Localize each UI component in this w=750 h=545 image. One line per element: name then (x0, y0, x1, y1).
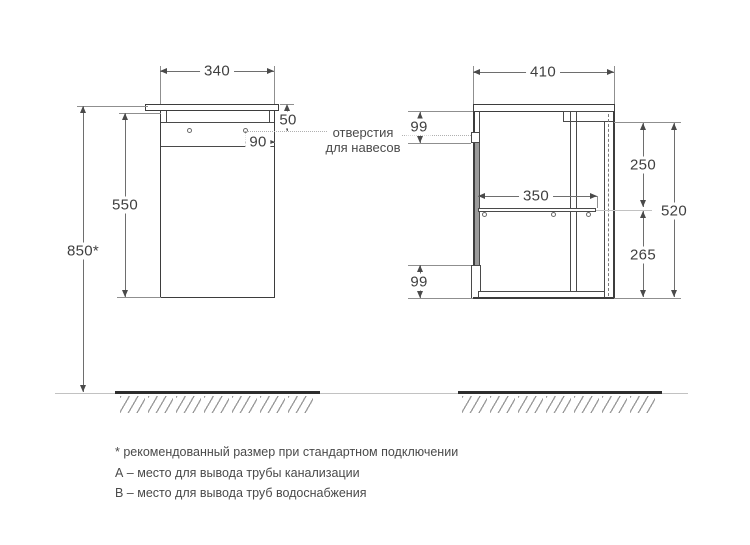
extension-line (614, 66, 615, 104)
arrow-down-icon (80, 385, 86, 392)
floor-hatch (148, 396, 173, 413)
dim-label-top-to-hole: 50 (275, 112, 300, 129)
dim-label-hole-to-edge: 90 (245, 134, 270, 151)
floor-line-left (115, 391, 320, 394)
arrow-up-icon (640, 211, 646, 218)
extension-line (274, 66, 275, 104)
arrow-up-icon (122, 113, 128, 120)
back-panel-dashed-line (608, 114, 609, 296)
arrow-left-icon (478, 193, 485, 199)
extension-line (117, 297, 161, 298)
note-b: В – место для вывода труб водоснабжения (115, 483, 458, 504)
leader-dotted-line (247, 131, 327, 132)
arrow-up-icon (284, 104, 290, 111)
floor-hatch (602, 396, 627, 413)
floor-hatch (204, 396, 229, 413)
dim-label-depth: 410 (526, 64, 560, 81)
arrow-right-icon (590, 193, 597, 199)
dim-label-bottom-offset: 99 (406, 274, 431, 291)
floor-hatch (176, 396, 201, 413)
annotation-line-1: отверстия (322, 126, 404, 141)
back-inner-panel-line (570, 111, 571, 299)
note-a: А – место для вывода трубы канализации (115, 463, 458, 484)
top-rail-line (166, 111, 167, 122)
hanger-hole (187, 128, 192, 133)
extension-line (77, 106, 148, 107)
dim-label-total-height: 850* (63, 243, 103, 260)
extension-line (614, 298, 681, 299)
extension-line (597, 196, 598, 208)
floor-hatch (120, 396, 145, 413)
door-panel-section (475, 143, 479, 265)
floor-hatch (518, 396, 543, 413)
dim-label-top-to-shelf: 250 (626, 157, 660, 174)
arrow-down-icon (640, 290, 646, 297)
arrow-down-icon (417, 136, 423, 143)
arrow-left-icon (160, 68, 167, 74)
arrow-down-icon (640, 200, 646, 207)
shelf-pin-hole (586, 212, 591, 217)
floor-hatch (630, 396, 655, 413)
floor-hatch (490, 396, 515, 413)
dim-label-hanger-offset: 99 (406, 119, 431, 136)
arrow-down-icon (671, 290, 677, 297)
arrow-right-icon (607, 69, 614, 75)
floor-hatch (574, 396, 599, 413)
dim-label-shelf-to-bottom: 265 (626, 247, 660, 264)
arrow-right-icon (267, 68, 274, 74)
notes-block: * рекомендованный размер при стандартном… (115, 442, 458, 504)
arrow-down-icon (417, 291, 423, 298)
top-rail-bottom-line (161, 122, 274, 123)
back-edge-outer (613, 111, 615, 299)
arrow-down-icon (122, 290, 128, 297)
arrow-up-icon (417, 265, 423, 272)
extension-line (408, 298, 473, 299)
dim-label-shelf-depth: 350 (519, 188, 553, 205)
note-asterisk: * рекомендованный размер при стандартном… (115, 442, 458, 463)
arrow-up-icon (640, 123, 646, 130)
annotation-line-2: для навесов (322, 141, 404, 156)
arrow-up-icon (80, 106, 86, 113)
hanger-notch (471, 132, 480, 143)
floor-hatch (260, 396, 285, 413)
extension-line (408, 143, 471, 144)
dim-label-side-height: 520 (657, 203, 691, 220)
back-inner-panel-line (576, 111, 577, 299)
floor-hatch (546, 396, 571, 413)
technical-drawing-cabinet: 340 50 90 550 850* отверстия для навесов… (0, 0, 750, 545)
arrow-left-icon (473, 69, 480, 75)
floor-line-right (458, 391, 662, 394)
floor-hatch (288, 396, 313, 413)
dim-label-width: 340 (200, 63, 234, 80)
annotation-holes-for-hangers: отверстия для навесов (322, 126, 404, 155)
floor-hatch (462, 396, 487, 413)
dim-label-cabinet-height: 550 (108, 197, 142, 214)
shelf-pin-hole (551, 212, 556, 217)
shelf-pin-hole (482, 212, 487, 217)
arrow-up-icon (671, 123, 677, 130)
top-rail-line (269, 111, 270, 122)
shelf (478, 208, 596, 212)
floor-hatch (232, 396, 257, 413)
cabinet-bottom-line (473, 297, 615, 299)
